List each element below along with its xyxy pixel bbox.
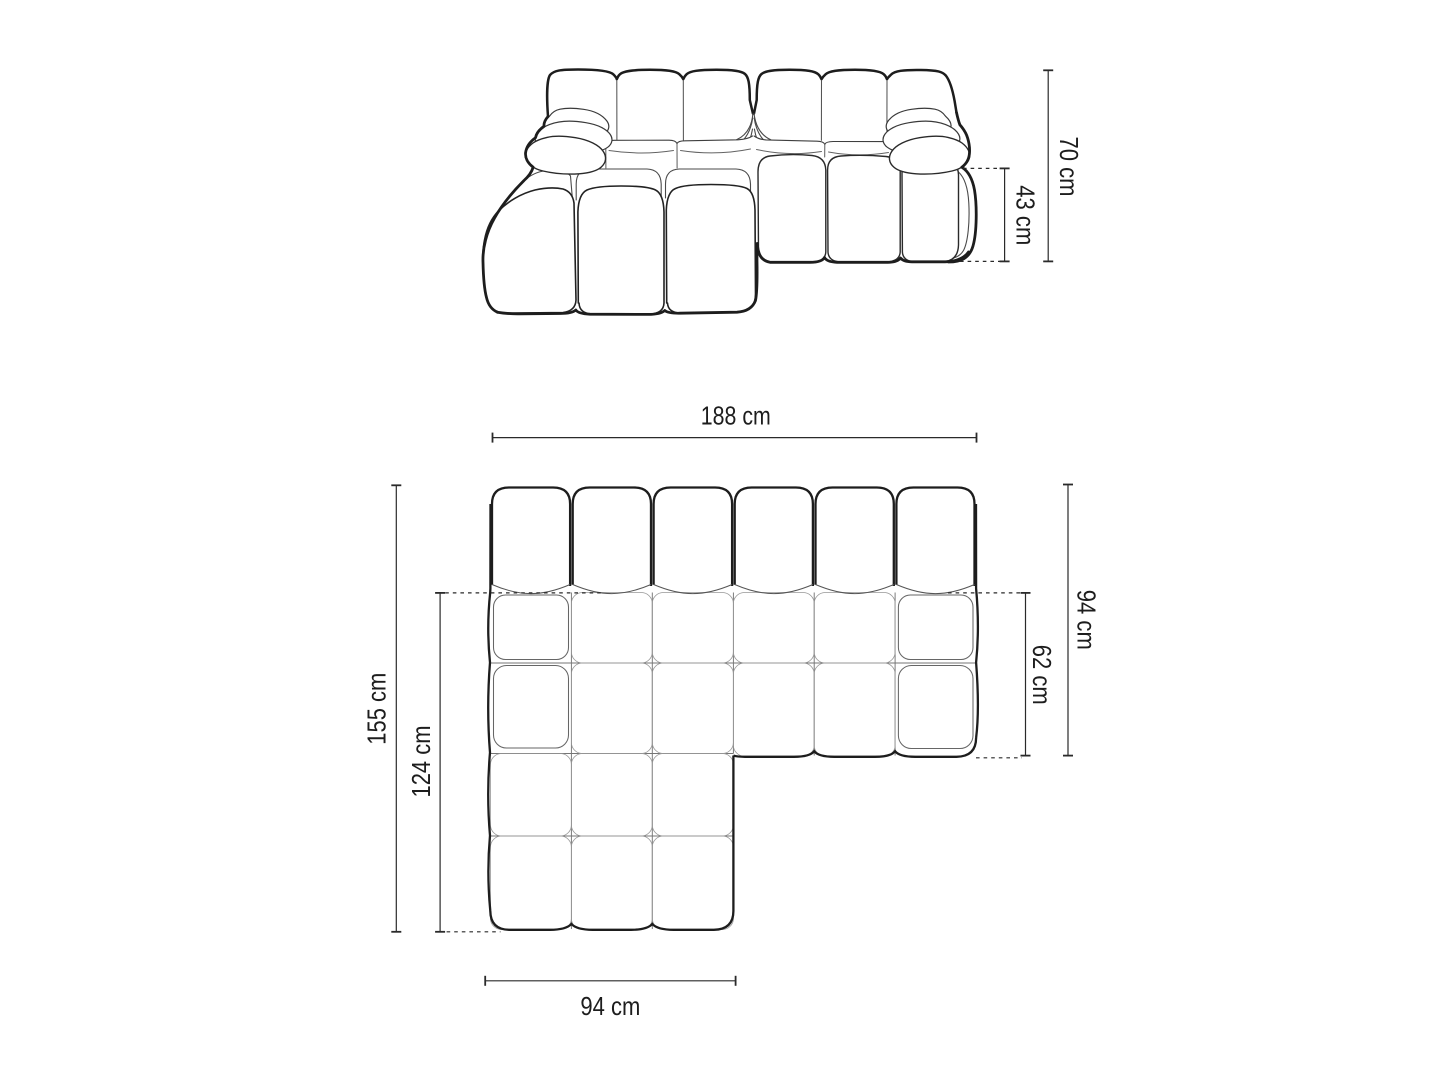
svg-text:188 cm: 188 cm	[701, 401, 771, 431]
svg-text:155 cm: 155 cm	[361, 673, 391, 745]
svg-text:124 cm: 124 cm	[406, 726, 436, 798]
svg-text:43 cm: 43 cm	[1011, 185, 1041, 245]
svg-text:70 cm: 70 cm	[1054, 137, 1084, 197]
svg-text:94 cm: 94 cm	[1071, 590, 1101, 650]
svg-text:94 cm: 94 cm	[580, 991, 640, 1021]
svg-text:62 cm: 62 cm	[1027, 645, 1057, 705]
